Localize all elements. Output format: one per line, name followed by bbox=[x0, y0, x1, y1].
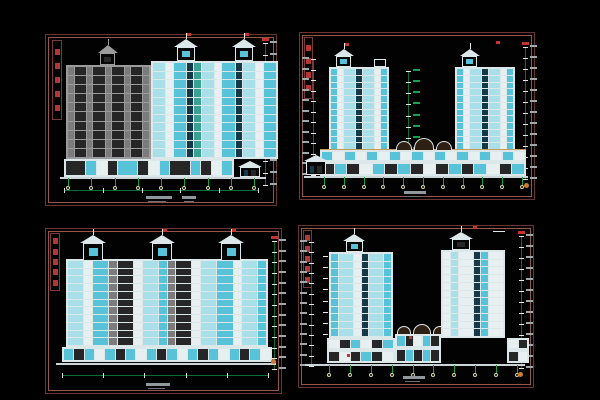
grid-line bbox=[138, 178, 139, 186]
window-cell bbox=[143, 103, 149, 111]
window-cell bbox=[134, 276, 142, 283]
ground-line bbox=[305, 364, 525, 366]
window-cell bbox=[222, 115, 234, 123]
window-cell bbox=[339, 277, 353, 284]
window-cell bbox=[375, 137, 381, 143]
window-cell bbox=[159, 300, 167, 307]
window-cell bbox=[176, 300, 191, 307]
window-cell bbox=[118, 276, 133, 283]
window-cell bbox=[68, 292, 83, 299]
right-tower-elevation-floor-row bbox=[443, 275, 503, 282]
mid-podium-upper bbox=[395, 334, 441, 348]
window-cell bbox=[215, 72, 221, 80]
window-cell bbox=[174, 106, 186, 114]
window-cell bbox=[118, 331, 133, 338]
window-cell bbox=[87, 131, 93, 139]
window-cell bbox=[109, 331, 117, 338]
grid-line bbox=[184, 178, 185, 186]
window-cell bbox=[258, 269, 266, 276]
window-cell bbox=[136, 349, 145, 360]
window-cell bbox=[369, 292, 383, 299]
window-cell bbox=[443, 306, 450, 313]
level-label bbox=[413, 80, 420, 82]
window-cell bbox=[383, 352, 393, 361]
window-cell bbox=[331, 277, 338, 284]
antenna-mast-icon bbox=[354, 228, 355, 234]
window-cell bbox=[192, 323, 200, 330]
window-cell bbox=[331, 292, 338, 299]
grid-bubble bbox=[441, 185, 445, 189]
window-cell bbox=[192, 276, 200, 283]
window-cell bbox=[159, 292, 167, 299]
right-tower-elevation-floor-row bbox=[443, 283, 503, 290]
flag-icon bbox=[163, 229, 167, 232]
window-cell bbox=[411, 164, 423, 174]
window-cell bbox=[362, 329, 369, 336]
ground-line bbox=[304, 176, 528, 178]
grid-line bbox=[502, 177, 503, 185]
window-cell bbox=[222, 80, 234, 88]
window-cell bbox=[481, 314, 488, 321]
window-cell bbox=[369, 269, 383, 276]
window-cell bbox=[363, 83, 374, 89]
grid-bubble bbox=[369, 373, 373, 377]
dimension-tick bbox=[219, 188, 220, 193]
gray-side-wing-elevation-floor-row bbox=[68, 76, 149, 84]
door-cell bbox=[310, 166, 315, 174]
window-cell bbox=[116, 349, 125, 360]
window-cell bbox=[449, 164, 461, 174]
window-cell bbox=[112, 85, 123, 93]
window-cell bbox=[84, 338, 92, 345]
window-cell bbox=[351, 352, 361, 361]
window-cell bbox=[362, 307, 369, 314]
level-label bbox=[279, 356, 286, 358]
window-cell bbox=[143, 94, 149, 102]
window-cell bbox=[153, 115, 165, 123]
main-facade-elevation bbox=[151, 61, 278, 159]
window-cell bbox=[202, 89, 214, 97]
level-label bbox=[300, 271, 307, 273]
title-glyph bbox=[53, 280, 58, 286]
window-cell bbox=[501, 116, 507, 122]
grid-line bbox=[383, 177, 384, 185]
window-cell bbox=[339, 262, 353, 269]
window-cell bbox=[222, 98, 234, 106]
window-cell bbox=[363, 103, 374, 109]
window-cell bbox=[489, 76, 500, 82]
window-cell bbox=[363, 116, 374, 122]
window-cell bbox=[84, 261, 92, 268]
window-cell bbox=[68, 331, 83, 338]
window-cell bbox=[354, 254, 361, 261]
window-cell bbox=[222, 141, 234, 149]
window-cell bbox=[258, 300, 266, 307]
drawing-scale-text-underline bbox=[184, 201, 194, 202]
roof-mast-flag bbox=[473, 226, 477, 229]
window-cell bbox=[168, 284, 176, 291]
level-tick bbox=[323, 278, 328, 279]
level-label bbox=[526, 234, 533, 236]
level-label bbox=[530, 45, 537, 47]
level-label bbox=[279, 303, 286, 305]
flag-icon bbox=[232, 229, 236, 232]
window-cell bbox=[459, 306, 473, 313]
window-cell bbox=[243, 132, 255, 140]
grid-bubble bbox=[480, 185, 484, 189]
window-cell bbox=[106, 122, 112, 130]
window-cell bbox=[93, 94, 104, 102]
level-tick bbox=[519, 280, 524, 281]
window-cell bbox=[474, 322, 481, 329]
window-cell bbox=[125, 85, 131, 93]
window-cell bbox=[215, 98, 221, 106]
level-label bbox=[530, 56, 537, 58]
window-cell bbox=[356, 152, 366, 160]
window-cell bbox=[68, 149, 74, 157]
window-cell bbox=[363, 130, 374, 136]
window-cell bbox=[333, 152, 343, 160]
window-cell bbox=[174, 89, 186, 97]
detail-bubble bbox=[271, 359, 276, 364]
title-glyph bbox=[55, 77, 60, 83]
window-cell bbox=[501, 83, 507, 89]
window-cell bbox=[242, 261, 257, 268]
level-tick bbox=[311, 101, 316, 102]
window-cell bbox=[369, 314, 383, 321]
window-cell bbox=[166, 98, 172, 106]
window-cell bbox=[222, 72, 234, 80]
window-cell bbox=[256, 149, 262, 157]
podium-shop-row bbox=[320, 162, 526, 176]
window-cell bbox=[143, 131, 149, 139]
window-cell bbox=[474, 164, 486, 174]
window-cell bbox=[457, 110, 463, 116]
right-tower-elevation-floor-row bbox=[457, 96, 513, 102]
main-facade-elevation-floor-row bbox=[153, 149, 276, 157]
level-tick bbox=[272, 252, 277, 253]
window-cell bbox=[84, 292, 92, 299]
window-cell bbox=[345, 152, 355, 160]
window-cell bbox=[397, 350, 405, 361]
left-tower-base-lower bbox=[327, 350, 395, 363]
level-tick bbox=[323, 267, 328, 268]
window-cell bbox=[339, 299, 353, 306]
gray-side-wing-elevation-floor-row bbox=[68, 140, 149, 148]
window-cell bbox=[134, 338, 142, 345]
window-cell bbox=[338, 110, 344, 116]
window-cell bbox=[482, 110, 488, 116]
window-cell bbox=[363, 76, 374, 82]
main-facade-elevation-floor-row bbox=[153, 123, 276, 131]
window-cell bbox=[482, 69, 488, 75]
window-cell bbox=[491, 152, 501, 160]
level-tick bbox=[523, 113, 528, 114]
window-cell bbox=[451, 267, 458, 274]
level-label bbox=[300, 250, 307, 252]
window-cell bbox=[68, 76, 74, 84]
window-cell bbox=[86, 161, 96, 175]
window-cell bbox=[344, 76, 355, 82]
level-tick bbox=[323, 312, 328, 313]
window-cell bbox=[451, 329, 458, 336]
window-cell bbox=[375, 123, 381, 129]
right-annex-upper-floor-row bbox=[509, 340, 527, 348]
left-tower-elevation-floor-row bbox=[331, 137, 387, 143]
window-cell bbox=[354, 307, 361, 314]
window-cell bbox=[222, 106, 234, 114]
window-cell bbox=[381, 69, 387, 75]
window-cell bbox=[174, 141, 186, 149]
window-cell bbox=[75, 149, 86, 157]
window-cell bbox=[84, 269, 92, 276]
right-tower-elevation-floor-row bbox=[457, 76, 513, 82]
level-label bbox=[279, 260, 286, 262]
window-cell bbox=[93, 331, 108, 338]
level-label bbox=[302, 89, 309, 91]
window-cell bbox=[329, 352, 339, 361]
window-cell bbox=[338, 69, 344, 75]
window-cell bbox=[470, 83, 481, 89]
cad-drawing-canvas bbox=[0, 0, 600, 400]
grid-line bbox=[324, 177, 325, 185]
window-cell bbox=[217, 300, 232, 307]
window-cell bbox=[482, 96, 488, 102]
window-cell bbox=[194, 106, 200, 114]
level-tick bbox=[406, 127, 411, 128]
window-cell bbox=[261, 349, 270, 360]
window-cell bbox=[131, 131, 142, 139]
window-cell bbox=[356, 116, 362, 122]
window-cell bbox=[202, 123, 214, 131]
window-cell bbox=[500, 164, 512, 174]
grid-line bbox=[91, 178, 92, 186]
window-cell bbox=[143, 331, 158, 338]
window-cell bbox=[489, 252, 503, 259]
window-cell bbox=[187, 98, 193, 106]
window-cell bbox=[354, 277, 361, 284]
window-cell bbox=[68, 338, 83, 345]
window-cell bbox=[118, 315, 133, 322]
window-cell bbox=[481, 291, 488, 298]
window-cell bbox=[222, 161, 232, 175]
window-cell bbox=[356, 96, 362, 102]
window-cell bbox=[338, 103, 344, 109]
window-cell bbox=[331, 284, 338, 291]
window-cell bbox=[143, 76, 149, 84]
window-cell bbox=[331, 123, 337, 129]
left-tower-elevation-floor-row bbox=[331, 292, 391, 299]
window-cell bbox=[153, 106, 165, 114]
dimension-top-mark bbox=[522, 42, 529, 45]
window-cell bbox=[331, 322, 338, 329]
roof-pavilion-right-body bbox=[235, 47, 253, 61]
window-cell bbox=[258, 323, 266, 330]
window-cell bbox=[126, 349, 135, 360]
level-label bbox=[270, 183, 277, 185]
title-glyph bbox=[55, 63, 60, 69]
window-cell bbox=[489, 314, 503, 321]
grid-line bbox=[454, 365, 455, 373]
window-cell bbox=[375, 69, 381, 75]
window-cell bbox=[106, 85, 112, 93]
window-cell bbox=[242, 307, 257, 314]
window-cell bbox=[174, 72, 186, 80]
window-cell bbox=[109, 269, 117, 276]
level-label bbox=[526, 300, 533, 302]
level-label bbox=[302, 78, 309, 80]
gray-side-wing-elevation-floor-row bbox=[68, 94, 149, 102]
window-cell bbox=[339, 329, 353, 336]
window-cell bbox=[93, 269, 108, 276]
window-cell bbox=[512, 164, 524, 174]
window-cell bbox=[481, 252, 488, 259]
window-cell bbox=[501, 96, 507, 102]
level-label bbox=[302, 131, 309, 133]
window-cell bbox=[174, 115, 186, 123]
grid-line bbox=[482, 177, 483, 185]
window-cell bbox=[153, 80, 165, 88]
window-cell bbox=[106, 131, 112, 139]
window-cell bbox=[489, 329, 503, 336]
window-cell bbox=[198, 349, 207, 360]
level-label bbox=[530, 78, 537, 80]
level-tick bbox=[519, 335, 524, 336]
window-cell bbox=[68, 140, 74, 148]
window-cell bbox=[143, 284, 158, 291]
right-tower-elevation-floor-row bbox=[457, 116, 513, 122]
window-cell bbox=[356, 76, 362, 82]
window-cell bbox=[153, 123, 165, 131]
window-cell bbox=[459, 298, 473, 305]
main-facade-elevation-floor-row bbox=[153, 141, 276, 149]
window-cell bbox=[74, 349, 83, 360]
window-cell bbox=[176, 315, 191, 322]
gate-house-body bbox=[306, 161, 326, 175]
level-label bbox=[530, 67, 537, 69]
window-cell bbox=[443, 291, 450, 298]
window-cell bbox=[143, 276, 158, 283]
window-cell bbox=[451, 283, 458, 290]
level-tick bbox=[523, 91, 528, 92]
window-cell bbox=[93, 307, 108, 314]
window-cell bbox=[344, 83, 355, 89]
flag-icon bbox=[245, 33, 249, 36]
window-cell bbox=[87, 76, 93, 84]
window-cell bbox=[451, 260, 458, 267]
window-cell bbox=[489, 116, 500, 122]
gray-side-wing-elevation-floor-row bbox=[68, 103, 149, 111]
window-cell bbox=[192, 300, 200, 307]
window-cell bbox=[159, 261, 167, 268]
window-cell bbox=[109, 284, 117, 291]
window-cell bbox=[215, 63, 221, 71]
window-cell bbox=[174, 98, 186, 106]
level-tick bbox=[523, 80, 528, 81]
window-cell bbox=[93, 140, 104, 148]
drawing-scale-text bbox=[182, 196, 196, 199]
window-cell bbox=[176, 284, 191, 291]
window-cell bbox=[174, 63, 186, 71]
window-cell bbox=[222, 132, 234, 140]
window-cell bbox=[369, 262, 383, 269]
window-cell bbox=[93, 261, 108, 268]
window-cell bbox=[118, 338, 133, 345]
window-cell bbox=[187, 115, 193, 123]
level-tick bbox=[519, 291, 524, 292]
window-cell bbox=[201, 292, 216, 299]
window-cell bbox=[338, 116, 344, 122]
window-cell bbox=[112, 140, 123, 148]
window-cell bbox=[68, 131, 74, 139]
window-cell bbox=[436, 164, 448, 174]
window-cell bbox=[507, 96, 513, 102]
window-cell bbox=[168, 338, 176, 345]
window-cell bbox=[112, 149, 123, 157]
podium-arch-center bbox=[413, 324, 431, 334]
window-cell bbox=[381, 103, 387, 109]
level-tick bbox=[323, 334, 328, 335]
window-cell bbox=[134, 269, 142, 276]
window-cell bbox=[64, 349, 73, 360]
window-cell bbox=[106, 112, 112, 120]
level-label bbox=[530, 155, 537, 157]
window-cell bbox=[68, 112, 74, 120]
window-cell bbox=[194, 89, 200, 97]
window-cell bbox=[187, 106, 193, 114]
level-label bbox=[300, 292, 307, 294]
left-tower-base-floor-row bbox=[329, 340, 393, 348]
window-cell bbox=[331, 96, 337, 102]
window-cell bbox=[131, 122, 142, 130]
window-cell bbox=[414, 336, 422, 346]
window-cell bbox=[339, 292, 353, 299]
window-cell bbox=[258, 276, 266, 283]
mid-podium-lower-floor-row bbox=[397, 350, 439, 361]
right-tower-elevation-floor-row bbox=[443, 322, 503, 329]
window-cell bbox=[362, 322, 369, 329]
window-cell bbox=[480, 152, 490, 160]
window-cell bbox=[362, 254, 369, 261]
level-tick bbox=[309, 345, 314, 346]
window-cell bbox=[242, 292, 257, 299]
window-cell bbox=[501, 76, 507, 82]
window-cell bbox=[381, 96, 387, 102]
window-cell bbox=[236, 63, 242, 71]
left-tower-elevation-floor-row bbox=[331, 307, 391, 314]
window-cell bbox=[242, 300, 257, 307]
window-cell bbox=[97, 161, 107, 175]
window-cell bbox=[501, 89, 507, 95]
window-cell bbox=[194, 98, 200, 106]
window-cell bbox=[373, 164, 385, 174]
level-tick bbox=[272, 262, 277, 263]
window-cell bbox=[470, 103, 481, 109]
door-cell bbox=[251, 170, 256, 175]
window-cell bbox=[68, 284, 83, 291]
window-cell bbox=[209, 349, 218, 360]
window-cell bbox=[143, 140, 149, 148]
level-label bbox=[413, 91, 420, 93]
door-cell bbox=[317, 166, 322, 174]
level-label bbox=[413, 136, 420, 138]
window-cell bbox=[202, 106, 214, 114]
left-tower-elevation-floor-row bbox=[331, 96, 387, 102]
level-label bbox=[530, 100, 537, 102]
window-cell bbox=[131, 140, 142, 148]
level-tick bbox=[519, 302, 524, 303]
window-cell bbox=[381, 116, 387, 122]
